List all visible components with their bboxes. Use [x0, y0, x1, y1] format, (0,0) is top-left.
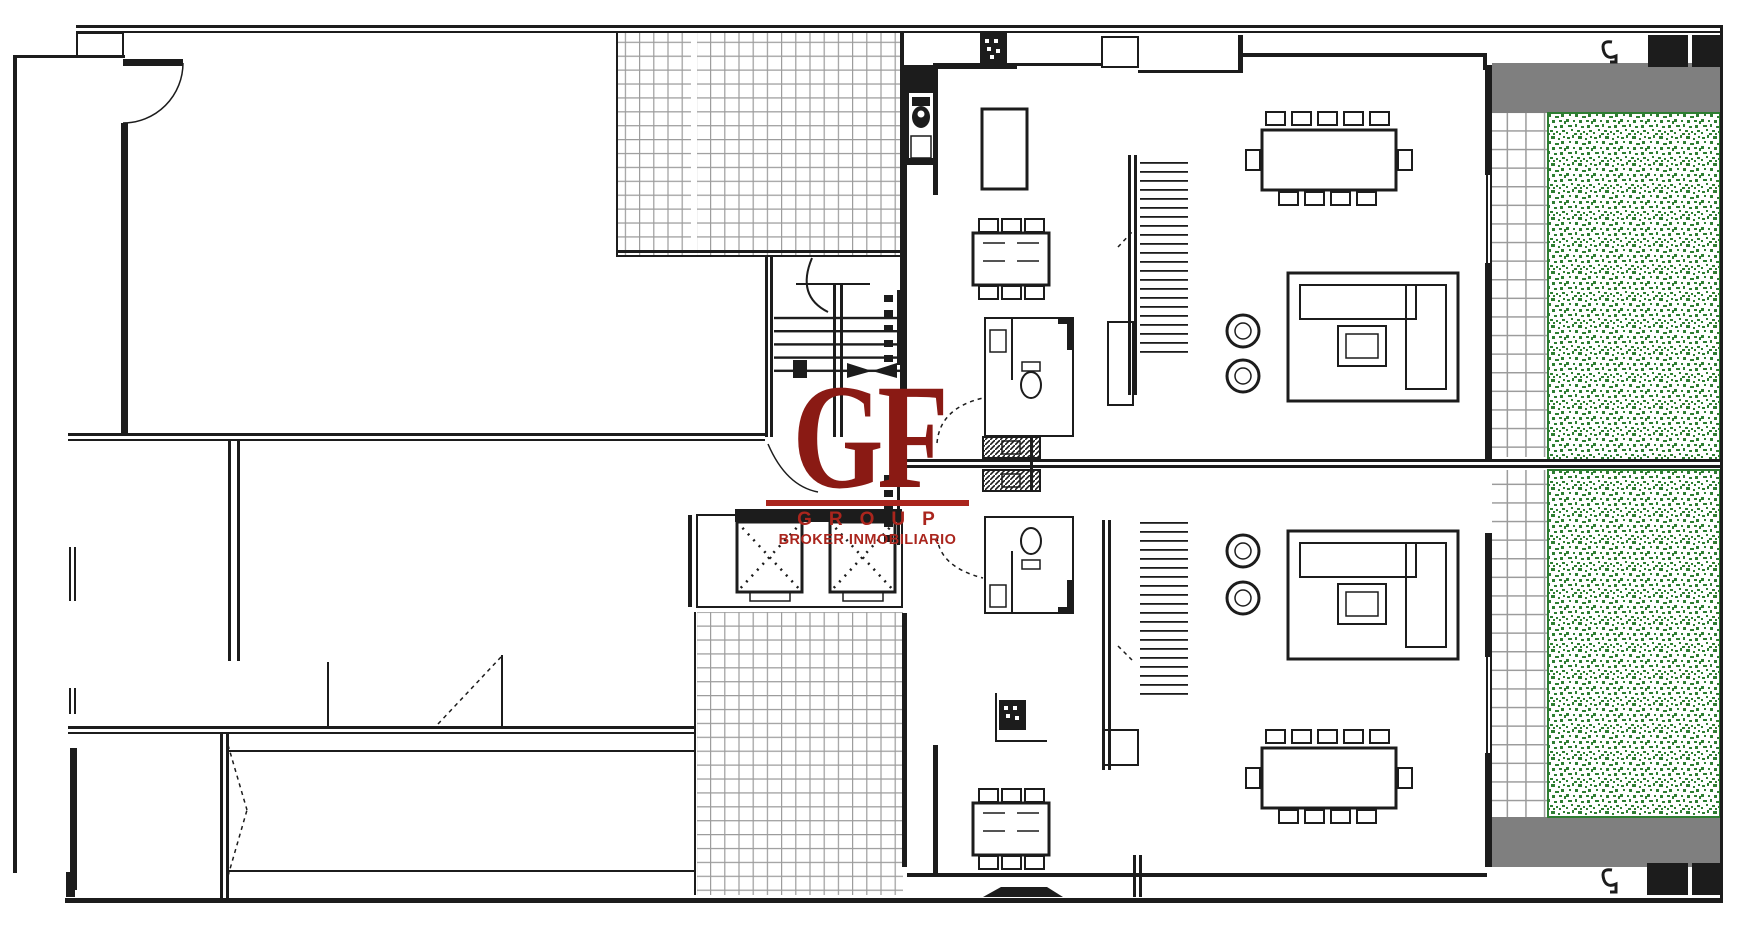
- sink: [990, 585, 1006, 607]
- apartment-lower: [884, 470, 1492, 897]
- toilet-tank: [912, 97, 930, 106]
- dining-table-lower: [973, 789, 1049, 869]
- floor-plan-svg: [0, 0, 1737, 950]
- stairs-upper-unit: [1108, 155, 1188, 405]
- kitchen-island-upper: [982, 109, 1027, 189]
- stairs-lower-unit: [1102, 520, 1188, 770]
- terrace-tiles-bottom: [697, 612, 903, 895]
- drain-hook-top: [1603, 42, 1616, 62]
- toilet: [1021, 372, 1041, 398]
- sofa-upper: [1288, 273, 1458, 401]
- paving-band-top: [1492, 63, 1720, 113]
- sofa-lower: [1288, 531, 1458, 659]
- terrace-tiles-top: [618, 33, 902, 255]
- hook-strip-lower: [884, 475, 893, 542]
- kitchen-lower: [995, 693, 1047, 742]
- floor-plan-page: GF GROUP BROKER INMOBILIARIO: [0, 0, 1737, 950]
- drain-hook-bottom: [1603, 870, 1616, 892]
- long-table-upper: [1246, 112, 1412, 205]
- paving-band-bottom: [1492, 817, 1720, 867]
- bathroom-lower: [985, 517, 1073, 613]
- garden-lower: [1548, 470, 1720, 817]
- dining-table-upper: [973, 219, 1049, 299]
- sink: [990, 330, 1006, 352]
- entry-step: [983, 887, 1063, 897]
- garden-upper: [1548, 113, 1720, 460]
- bathroom-upper: [985, 318, 1073, 436]
- toilet: [1021, 528, 1041, 554]
- vent-box: [1102, 37, 1138, 67]
- long-table-lower: [1246, 730, 1412, 823]
- apartment-upper: [884, 33, 1492, 460]
- cooktop: [999, 700, 1026, 730]
